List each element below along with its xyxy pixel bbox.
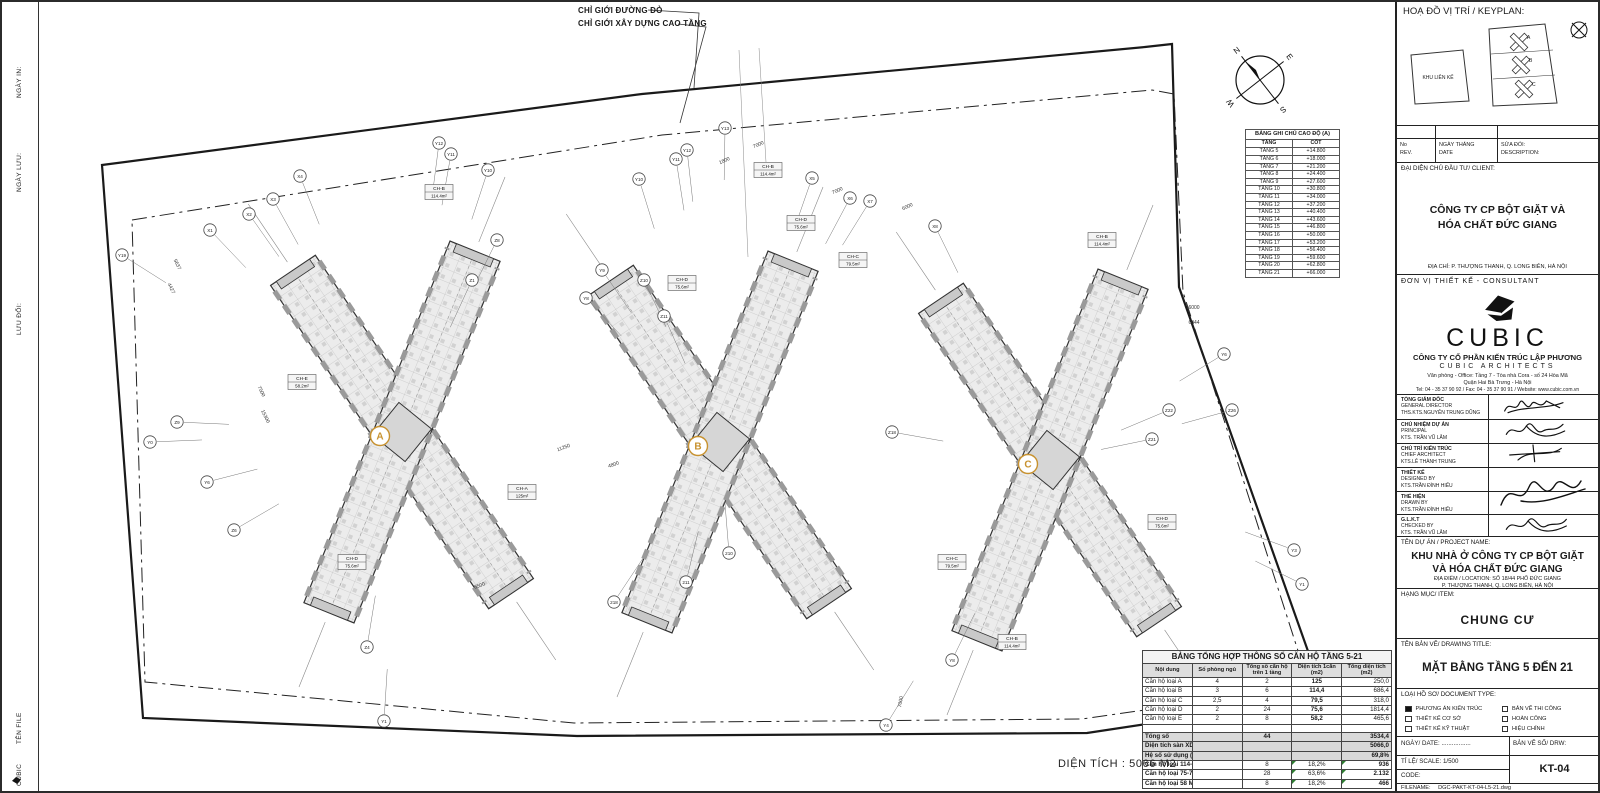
grid-leader-line <box>184 422 229 424</box>
dimension-label: 7000 <box>831 186 844 196</box>
grid-bubble-label: Z18 <box>888 430 896 435</box>
dimension-label: 11250 <box>556 443 571 453</box>
item-header: HẠNG MỤC/ ITEM: <box>1397 589 1598 598</box>
signature-person-name: THS.KTS.NGUYỄN TRUNG DŨNG <box>1401 410 1488 416</box>
dimension-label: 1800 <box>718 156 731 166</box>
filename-value: DGC-PAKT-KT-04-L5-21.dwg <box>1432 785 1511 791</box>
grid-bubble-label: Z6 <box>231 528 237 533</box>
doctype-option-label: HIỆU CHỈNH <box>1508 726 1545 732</box>
elevation-row: TẦNG 16+50.000 <box>1246 231 1340 239</box>
extension-lines <box>739 48 766 257</box>
grid-leader-line <box>157 440 202 442</box>
elevation-note-table: BẢNG GHI CHÚ CAO ĐỘ (A)TẦNGCỐTTẦNG 5+14.… <box>1245 129 1340 278</box>
svg-text:CH-D: CH-D <box>346 556 359 562</box>
revision-header-text: DESCRIPTION: <box>1501 150 1597 158</box>
client-name-line2: HÓA CHẤT ĐỨC GIANG <box>1397 218 1598 233</box>
doctype-option: BẢN VẼ THI CÔNG <box>1502 704 1599 714</box>
grid-bubble-label: 218 <box>610 600 618 605</box>
svg-text:CH-B: CH-B <box>1006 636 1018 642</box>
revision-header-cell: NoREV. <box>1397 139 1435 162</box>
grid-bubble-label: Z21 <box>1148 437 1156 442</box>
code-field: CODE: <box>1397 769 1509 783</box>
grid-bubble-label: Y0 <box>147 440 153 445</box>
cubic-logo-text: CUBIC <box>1397 326 1598 350</box>
margin-label: CUBIC <box>16 764 23 786</box>
titleblock-footer: NGÀY/ DATE: ................. BẢN VẼ SỐ/… <box>1397 736 1598 793</box>
grid-leader-line <box>384 669 387 714</box>
grid-leader-line <box>677 166 684 210</box>
summary-row: Căn hộ loại C2,5479,5318,0 <box>1143 696 1392 705</box>
dimension-label: 6000 <box>1188 305 1199 311</box>
unit-type-label: CH-E58.2m² <box>288 375 316 390</box>
svg-text:114.4m²: 114.4m² <box>1094 241 1110 246</box>
grid-bubble-label: Z22 <box>1165 408 1173 413</box>
signature-person-name: KTS. TRẦN VŨ LÂM <box>1401 435 1488 441</box>
svg-text:CH-A: CH-A <box>516 486 529 492</box>
grid-leader-line <box>1255 561 1295 581</box>
elevation-column-header: TẦNG <box>1246 140 1293 148</box>
svg-text:CH-C: CH-C <box>946 556 959 562</box>
signature-row: G.L.K.TCHECKED BYKTS. TRẦN VŨ LÂM <box>1397 514 1598 536</box>
site-area-note: DIỆN TÍCH : 5066 M2 <box>1058 758 1176 770</box>
signature-row: CHỦ NHIỆM DỰ ÁNPRINCIPALKTS. TRẦN VŨ LÂM <box>1397 419 1598 443</box>
doctype-option-label: PHƯƠNG ÁN KIẾN TRÚC <box>1412 706 1483 712</box>
tower-label: B <box>694 442 701 453</box>
grid-bubble-label: Z9 <box>174 420 180 425</box>
summary-row: Căn hộ loại B36114,4686,4 <box>1143 687 1392 696</box>
grid-bubble-label: X2 <box>246 212 252 217</box>
filename-field: FILENAME: DGC-PAKT-KT-04-L5-21.dwg <box>1397 783 1598 791</box>
signature-role-label: THIẾT KẾDESIGNED BYKTS.TRẦN ĐÌNH HIẾU <box>1397 468 1489 491</box>
drawing-title-header: TÊN BẢN VẼ/ DRAWING TITLE: <box>1397 639 1598 648</box>
summary-row: Căn hộ loại D22475,61814,4 <box>1143 706 1392 715</box>
elevation-row: TẦNG 8+24.400 <box>1246 171 1340 179</box>
grid-leader-line <box>938 232 958 272</box>
grid-leader-line <box>276 205 298 244</box>
elevation-row: TẦNG 13+40.400 <box>1246 209 1340 217</box>
grid-leader-line <box>826 204 847 244</box>
dimension-label: 4427 <box>166 282 176 295</box>
signature-role-label: G.L.K.TCHECKED BYKTS. TRẦN VŨ LÂM <box>1397 515 1489 536</box>
grid-bubble-label: Y8 <box>583 296 589 301</box>
unit-type-label: CH-C79.5m² <box>938 555 966 570</box>
sheet-left-margin: NGÀY IN:NGÀY LƯU:LƯU ĐỔI:TÊN FILECUBIC <box>2 2 39 791</box>
summary-row: Căn hộ loại 75-79 M22863,6%2.132 <box>1143 770 1392 779</box>
svg-text:79.5m²: 79.5m² <box>846 261 860 266</box>
summary-column-header: Số phòng ngủ <box>1192 664 1242 678</box>
unit-type-label: CH-D75.6m² <box>1148 515 1176 530</box>
doctype-option: THIẾT KẾ CƠ SỞ <box>1405 714 1502 724</box>
grid-bubble-label: X7 <box>867 199 873 204</box>
dimension-label: 15300 <box>259 409 271 424</box>
consultant-office-line2: Quận Hai Bà Trưng - Hà Nội <box>1397 380 1598 387</box>
tower-label: A <box>376 432 383 443</box>
drawing-number: KT-04 <box>1509 755 1598 783</box>
summary-row: Tổng số443534,4 <box>1143 732 1392 741</box>
svg-text:CH-D: CH-D <box>1156 516 1169 522</box>
elevation-row: TẦNG 10+30.800 <box>1246 186 1340 194</box>
grid-bubble-label: Y11 <box>672 157 680 162</box>
elevation-row: TẦNG 18+56.400 <box>1246 247 1340 255</box>
grid-bubble-label: Y12 <box>435 141 444 146</box>
svg-text:CH-B: CH-B <box>433 186 445 192</box>
summary-row: Diện tích sàn XD 1 tầng5066,0 <box>1143 742 1392 751</box>
grid-leader-line <box>472 177 486 220</box>
project-name-line1: KHU NHÀ Ở CÔNG TY CP BỘT GIẶT <box>1397 550 1598 563</box>
grid-bubble-label: Y1 <box>381 719 387 724</box>
grid-bubble-label: X3 <box>270 197 276 202</box>
revision-header-text: No <box>1400 142 1432 150</box>
elevation-row: TẦNG 9+27.600 <box>1246 178 1340 186</box>
grid-bubble-label: Y12 <box>683 148 692 153</box>
signature-scribble <box>1493 396 1593 416</box>
unit-type-label: CH-B114.4m² <box>998 635 1026 650</box>
grid-leader-line <box>240 504 279 527</box>
grid-leader-line <box>843 207 867 245</box>
keyplan-map: KHU LIÊN KẾABC <box>1397 17 1598 116</box>
grid-leader-line <box>214 469 258 480</box>
grid-bubble-label: Y10 <box>484 168 493 173</box>
grid-bubble-label: X4 <box>297 174 303 179</box>
doctype-options: PHƯƠNG ÁN KIẾN TRÚCTHIẾT KẾ CƠ SỞTHIẾT K… <box>1397 701 1598 736</box>
client-body: CÔNG TY CP BỘT GIẶT VÀ HÓA CHẤT ĐỨC GIAN… <box>1397 175 1598 274</box>
summary-column-header: Diện tích 1căn (m2) <box>1292 664 1342 678</box>
consultant-name-en: CUBIC ARCHITECTS <box>1397 363 1598 370</box>
drawing-title-body: MẶT BẰNG TẦNG 5 ĐẾN 21 <box>1397 651 1598 688</box>
grid-leader-line <box>368 596 375 640</box>
client-address: ĐỊA CHỈ: P. THƯỢNG THANH, Q. LONG BIÊN, … <box>1397 264 1598 270</box>
svg-text:125m²: 125m² <box>516 493 529 498</box>
elevation-row: TẦNG 11+34.000 <box>1246 193 1340 201</box>
consultant-office-line1: Văn phòng - Office: Tầng 7 - Tòa nhà Cor… <box>1397 373 1598 380</box>
dimension-label: 7000 <box>897 696 905 708</box>
elevation-row: TẦNG 21+66.000 <box>1246 269 1340 277</box>
grid-bubble-label: Z1 <box>469 278 475 283</box>
dimension-label: 4800 <box>607 460 620 470</box>
consultant-contact-line: Tel: 04 - 35 37 90 92 / Fax: 04 - 35 37 … <box>1397 387 1598 394</box>
summary-row: Căn hộ loại A42125250,0 <box>1143 677 1392 686</box>
compass-icon: NESW <box>1224 45 1294 115</box>
summary-row: Hệ số sử dụng ( k % )69,8% <box>1143 751 1392 760</box>
compass-n-label: N <box>1232 45 1242 56</box>
grid-leader-line <box>215 235 246 268</box>
tower-label: C <box>1024 460 1031 471</box>
dimension-label: 5637 <box>172 258 182 271</box>
doctype-header: LOẠI HỒ SƠ/ DOCUMENT TYPE: <box>1397 689 1598 698</box>
unit-type-label: CH-C79.5m² <box>839 253 867 268</box>
signature-person-name: KTS.TRẦN ĐÌNH HIẾU <box>1401 507 1488 513</box>
svg-text:75.6m²: 75.6m² <box>1155 523 1169 528</box>
unit-type-label: CH-B114.4m² <box>425 185 453 200</box>
grid-bubble-label: X8 <box>932 224 938 229</box>
grid-bubble-label: Z4 <box>364 645 370 650</box>
project-header: TÊN DỰ ÁN / PROJECT NAME: <box>1397 537 1598 546</box>
grid-leader-line <box>899 433 943 441</box>
elevation-table-title: BẢNG GHI CHÚ CAO ĐỘ (A) <box>1246 130 1340 140</box>
signature-table: TỔNG GIÁM ĐỐCGENERAL DIRECTORTHS.KTS.NGU… <box>1397 394 1598 536</box>
summary-column-header: Nội dung <box>1143 664 1193 678</box>
consultant-header: ĐƠN VỊ THIẾT KẾ - CONSULTANT <box>1397 275 1598 285</box>
svg-text:CH-D: CH-D <box>795 217 808 223</box>
consultant-identity: CUBIC CÔNG TY CỔ PHẦN KIẾN TRÚC LẬP PHƯƠ… <box>1397 288 1598 394</box>
margin-label: TÊN FILE <box>16 712 23 744</box>
boundary-labels: CHỈ GIỚI ĐƯỜNG ĐỎ CHỈ GIỚI XÂY DỰNG CAO … <box>578 4 707 30</box>
grid-bubble-label: Y6 <box>204 480 210 485</box>
svg-text:75.6m²: 75.6m² <box>675 284 689 289</box>
compass-s-label: S <box>1278 104 1288 114</box>
summary-table-title: BẢNG TỔNG HỢP THÔNG SỐ CĂN HỘ TẦNG 5-21 <box>1143 651 1392 664</box>
item-body: CHUNG CƯ <box>1397 601 1598 638</box>
consultant-section: ĐƠN VỊ THIẾT KẾ - CONSULTANT <box>1397 274 1598 288</box>
grid-bubble-label: 211 <box>682 580 690 585</box>
tower-footprint <box>223 162 581 702</box>
signature-role-label: THỂ HIỆNDRAWN BYKTS.TRẦN ĐÌNH HIẾU <box>1397 492 1489 514</box>
grid-bubble-label: Y19 <box>118 253 127 258</box>
scale-field: TỈ LỆ/ SCALE: 1/500 <box>1397 755 1509 769</box>
unit-type-label: CH-D75.6m² <box>668 276 696 291</box>
consultant-name-vn: CÔNG TY CỔ PHẦN KIẾN TRÚC LẬP PHƯƠNG <box>1397 353 1598 362</box>
grid-leader-line <box>1101 440 1145 449</box>
svg-text:75.6m²: 75.6m² <box>794 224 808 229</box>
revision-header-text: DATE <box>1439 150 1494 158</box>
elevation-row: TẦNG 12+37.200 <box>1246 201 1340 209</box>
svg-text:114.4m²: 114.4m² <box>431 193 447 198</box>
grid-bubble-label: X6 <box>847 196 853 201</box>
cubic-logo-icon <box>1470 291 1526 321</box>
grid-leader-line <box>303 183 320 225</box>
summary-row: Căn hộ loại E2858,2465,6 <box>1143 715 1392 724</box>
grid-leader-line <box>641 186 654 229</box>
grid-bubble-label: Y6 <box>1221 352 1227 357</box>
grid-bubble-label: Y4 <box>883 723 889 728</box>
drawing-number-header: BẢN VẼ SỐ/ DRW: <box>1509 737 1598 755</box>
filename-label: FILENAME: <box>1401 785 1431 791</box>
grid-bubble-label: Y13 <box>721 126 730 131</box>
revision-header-cell: NGÀY THÁNGDATE <box>1435 139 1497 162</box>
grid-leader-line <box>688 157 693 202</box>
unit-type-label: CH-D75.6m² <box>787 216 815 231</box>
revision-header-row: NoREV.NGÀY THÁNGDATESỬA ĐỔI:DESCRIPTION: <box>1397 138 1598 162</box>
item-name: CHUNG CƯ <box>1397 613 1598 627</box>
unit-type-label: CH-A125m² <box>508 485 536 500</box>
doctype-option: THIẾT KẾ KỸ THUẬT <box>1405 724 1502 734</box>
doctype-section: LOẠI HỒ SƠ/ DOCUMENT TYPE: <box>1397 688 1598 701</box>
doctype-option: PHƯƠNG ÁN KIẾN TRÚC <box>1405 704 1502 714</box>
doctype-option-label: HOÀN CÔNG <box>1508 716 1547 722</box>
svg-text:CH-B: CH-B <box>762 164 774 170</box>
grid-leader-line <box>1121 413 1162 430</box>
summary-row: Căn hộ loại 58 M2818,2%466 <box>1143 779 1392 788</box>
grid-bubble-label: Y3 <box>1291 548 1297 553</box>
keyplan-tower-label: C <box>1532 82 1536 88</box>
signature-person-name: KTS.LÊ THÀNH TRUNG <box>1401 459 1488 465</box>
grid-bubble-label: Y1 <box>1299 582 1305 587</box>
elevation-column-header: CỐT <box>1293 140 1340 148</box>
signature-scribble <box>1493 516 1593 536</box>
client-header: ĐẠI DIỆN CHỦ ĐẦU TƯ/ CLIENT: <box>1397 163 1598 172</box>
grid-bubble-label: Z10 <box>640 278 648 283</box>
grid-leader-line <box>253 220 279 257</box>
keyplan-header: HOẠ ĐỒ VỊ TRÍ / KEYPLAN: <box>1397 2 1598 17</box>
project-section: TÊN DỰ ÁN / PROJECT NAME: <box>1397 536 1598 549</box>
revision-empty-row <box>1397 125 1598 138</box>
margin-label: NGÀY IN: <box>16 66 23 98</box>
signature-person-name: KTS.TRẦN ĐÌNH HIẾU <box>1401 483 1488 489</box>
keyplan-section: HOẠ ĐỒ VỊ TRÍ / KEYPLAN: KHU LIÊN KẾABC <box>1397 2 1598 125</box>
elevation-row: TẦNG 7+21.200 <box>1246 163 1340 171</box>
svg-text:114.4m²: 114.4m² <box>760 171 776 176</box>
revision-header-text: NGÀY THÁNG <box>1439 142 1494 150</box>
doctype-option: HOÀN CÔNG <box>1502 714 1599 724</box>
grid-bubble-label: 210 <box>725 551 733 556</box>
signature-row: TỔNG GIÁM ĐỐCGENERAL DIRECTORTHS.KTS.NGU… <box>1397 395 1598 419</box>
grid-leader-line <box>1180 358 1218 381</box>
drawing-title-section: TÊN BẢN VẼ/ DRAWING TITLE: <box>1397 638 1598 651</box>
signature-scribble <box>1493 421 1593 441</box>
construction-boundary-label: CHỈ GIỚI XÂY DỰNG CAO TẦNG <box>578 17 707 30</box>
drawing-sheet: ABCX1X2X3X4Y19Y12Y11Y10Z8Z1Y9Y8Z10Z11Z9Y… <box>0 0 1600 793</box>
grid-bubble-label: Z11 <box>660 314 668 319</box>
svg-text:79.5m²: 79.5m² <box>945 563 959 568</box>
svg-text:CH-E: CH-E <box>296 376 308 382</box>
revision-header-text: REV. <box>1400 150 1432 158</box>
unit-type-label: CH-B114.4m² <box>1088 233 1116 248</box>
apartment-summary-table: BẢNG TỔNG HỢP THÔNG SỐ CĂN HỘ TẦNG 5-21N… <box>1142 650 1392 789</box>
client-section: ĐẠI DIỆN CHỦ ĐẦU TƯ/ CLIENT: <box>1397 162 1598 175</box>
keyplan-adjacent-label: KHU LIÊN KẾ <box>1422 73 1454 81</box>
grid-bubble-label: X1 <box>207 228 213 233</box>
dimension-label: 6000 <box>901 202 914 212</box>
signature-role-label: CHỦ NHIỆM DỰ ÁNPRINCIPALKTS. TRẦN VŨ LÂM <box>1397 420 1489 443</box>
title-block: HOẠ ĐỒ VỊ TRÍ / KEYPLAN: KHU LIÊN KẾABC … <box>1395 2 1598 791</box>
summary-column-header: Tổng diện tích (m2) <box>1342 664 1392 678</box>
item-section: HẠNG MỤC/ ITEM: <box>1397 588 1598 601</box>
project-name-line2: VÀ HÓA CHẤT ĐỨC GIANG <box>1397 563 1598 576</box>
unit-type-label: CH-D75.6m² <box>338 555 366 570</box>
grid-leader-line <box>725 501 729 546</box>
elevation-row: TẦNG 17+53.200 <box>1246 239 1340 247</box>
project-location-line1: ĐỊA ĐIỂM / LOCATION: SỐ 18/44 PHỐ ĐỨC GI… <box>1397 576 1598 583</box>
dimension-label: 6044 <box>1188 320 1199 326</box>
elevation-row: TẦNG 20+62.800 <box>1246 262 1340 270</box>
compass-w-label: W <box>1224 97 1236 109</box>
margin-label: NGÀY LƯU: <box>16 153 23 192</box>
grid-bubble-label: Y11 <box>447 152 455 157</box>
date-field: NGÀY/ DATE: ................. <box>1397 737 1509 755</box>
revision-header-cell: SỬA ĐỔI:DESCRIPTION: <box>1497 139 1598 162</box>
svg-text:CH-B: CH-B <box>1096 234 1108 240</box>
dimension-label: 7500 <box>256 385 266 398</box>
revision-header-text: SỬA ĐỔI: <box>1501 142 1597 150</box>
elevation-row: TẦNG 19+59.600 <box>1246 254 1340 262</box>
signature-row: THIẾT KẾDESIGNED BYKTS.TRẦN ĐÌNH HIẾU <box>1397 467 1598 491</box>
grid-bubble-label: Y9 <box>599 268 605 273</box>
summary-row <box>1143 724 1392 732</box>
unit-type-label: CH-B114.4m² <box>754 163 782 178</box>
elevation-row: TẦNG 6+18.000 <box>1246 156 1340 164</box>
grid-bubble-label: Y10 <box>635 177 644 182</box>
compass-e-label: E <box>1284 52 1294 62</box>
project-body: KHU NHÀ Ở CÔNG TY CP BỘT GIẶT VÀ HÓA CHẤ… <box>1397 549 1598 588</box>
grid-leader-line <box>1182 412 1225 424</box>
margin-label: LƯU ĐỔI: <box>16 303 23 335</box>
elevation-row: TẦNG 14+43.600 <box>1246 216 1340 224</box>
doctype-option-label: THIẾT KẾ CƠ SỞ <box>1412 716 1462 722</box>
svg-text:75.6m²: 75.6m² <box>345 563 359 568</box>
grid-bubble-label: Z26 <box>1228 408 1236 413</box>
svg-text:CH-D: CH-D <box>676 277 689 283</box>
svg-text:CH-C: CH-C <box>847 254 860 260</box>
svg-text:114.4m²: 114.4m² <box>1004 643 1020 648</box>
drawing-title: MẶT BẰNG TẦNG 5 ĐẾN 21 <box>1397 662 1598 674</box>
summary-row: Căn hộ loại 114-125 M2818,2%936 <box>1143 761 1392 770</box>
signature-row: CHỦ TRÌ KIẾN TRÚCCHIEF ARCHITECTKTS.LÊ T… <box>1397 443 1598 467</box>
keyplan-compass-icon <box>1571 22 1587 38</box>
svg-text:58.2m²: 58.2m² <box>295 383 309 388</box>
dimension-label: 7000 <box>752 140 765 150</box>
doctype-option: HIỆU CHỈNH <box>1502 724 1599 734</box>
client-name-line1: CÔNG TY CP BỘT GIẶT VÀ <box>1397 203 1598 218</box>
signature-scribble <box>1493 445 1593 465</box>
grid-bubble-label: Y8 <box>949 658 955 663</box>
doctype-option-label: THIẾT KẾ KỸ THUẬT <box>1412 726 1470 732</box>
grid-bubble-label: Z8 <box>494 238 500 243</box>
signature-role-label: TỔNG GIÁM ĐỐCGENERAL DIRECTORTHS.KTS.NGU… <box>1397 395 1489 419</box>
summary-column-header: Tổng số căn hộ trên 1 tầng <box>1242 664 1292 678</box>
doctype-option-label: BẢN VẼ THI CÔNG <box>1508 706 1561 712</box>
grid-bubble-label: X5 <box>809 176 815 181</box>
signature-scribble <box>1493 469 1593 513</box>
red-line-boundary-label: CHỈ GIỚI ĐƯỜNG ĐỎ <box>578 4 707 17</box>
elevation-row: TẦNG 5+14.800 <box>1246 148 1340 156</box>
elevation-row: TẦNG 15+46.800 <box>1246 224 1340 232</box>
signature-role-label: CHỦ TRÌ KIẾN TRÚCCHIEF ARCHITECTKTS.LÊ T… <box>1397 444 1489 467</box>
